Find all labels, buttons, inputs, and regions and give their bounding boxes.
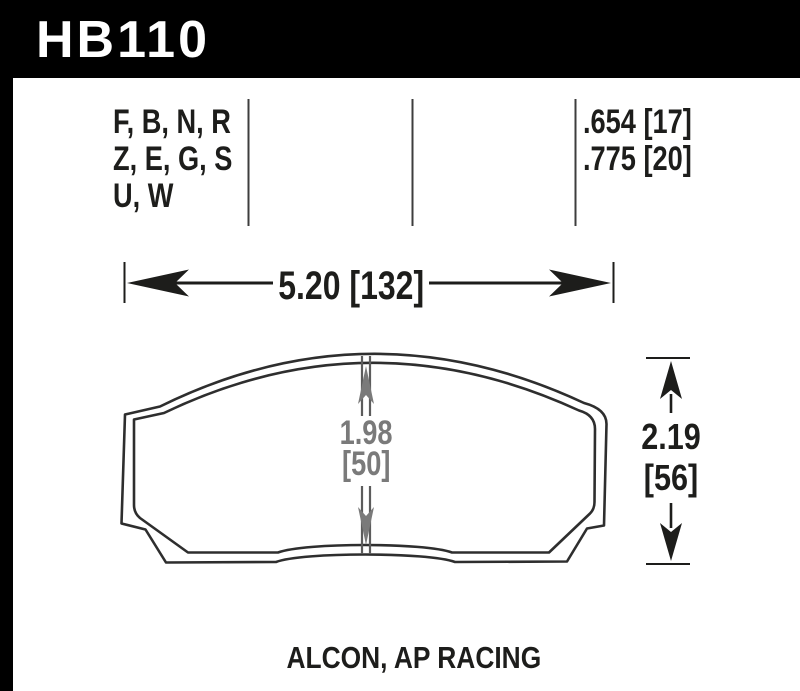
thickness-value: .654 [17] bbox=[583, 104, 692, 141]
center-height-mm-wrap: [50] bbox=[266, 447, 466, 481]
thickness-value: .775 [20] bbox=[583, 141, 692, 178]
thickness-list: .654 [17] .775 [20] bbox=[583, 104, 719, 178]
pad-height-mm-value: [56] bbox=[644, 460, 698, 496]
part-number: HB110 bbox=[36, 10, 210, 70]
applications-label-wrap: ALCON, AP RACING bbox=[214, 642, 614, 673]
compound-row: F, B, N, R bbox=[113, 104, 262, 141]
compound-row-label: U, W bbox=[113, 178, 173, 215]
arrow-down-icon bbox=[358, 507, 374, 545]
pad-width-label-wrap: 5.20 [132] bbox=[201, 266, 501, 306]
arrow-down-icon bbox=[660, 523, 682, 561]
arrow-up-icon bbox=[660, 361, 682, 399]
thickness-row: .654 [17] bbox=[583, 104, 719, 141]
applications-value: ALCON, AP RACING bbox=[287, 642, 542, 673]
pad-height-in-wrap: 2.19 bbox=[571, 419, 771, 455]
compound-list: F, B, N, R Z, E, G, S U, W bbox=[113, 104, 262, 215]
compound-row-label: F, B, N, R bbox=[113, 104, 231, 141]
pad-height-in-value: 2.19 bbox=[641, 419, 701, 455]
left-border bbox=[0, 0, 13, 691]
compound-row-label: Z, E, G, S bbox=[113, 141, 232, 178]
center-height-mm-value: [50] bbox=[342, 447, 390, 481]
thickness-row: .775 [20] bbox=[583, 141, 719, 178]
arrow-up-icon bbox=[358, 366, 374, 404]
column-dividers bbox=[249, 99, 576, 226]
pad-width-value: 5.20 [132] bbox=[278, 266, 424, 306]
pad-height-mm-wrap: [56] bbox=[571, 460, 771, 496]
compound-row: Z, E, G, S bbox=[113, 141, 262, 178]
header-bar: HB110 bbox=[0, 0, 800, 78]
compound-row: U, W bbox=[113, 178, 262, 215]
